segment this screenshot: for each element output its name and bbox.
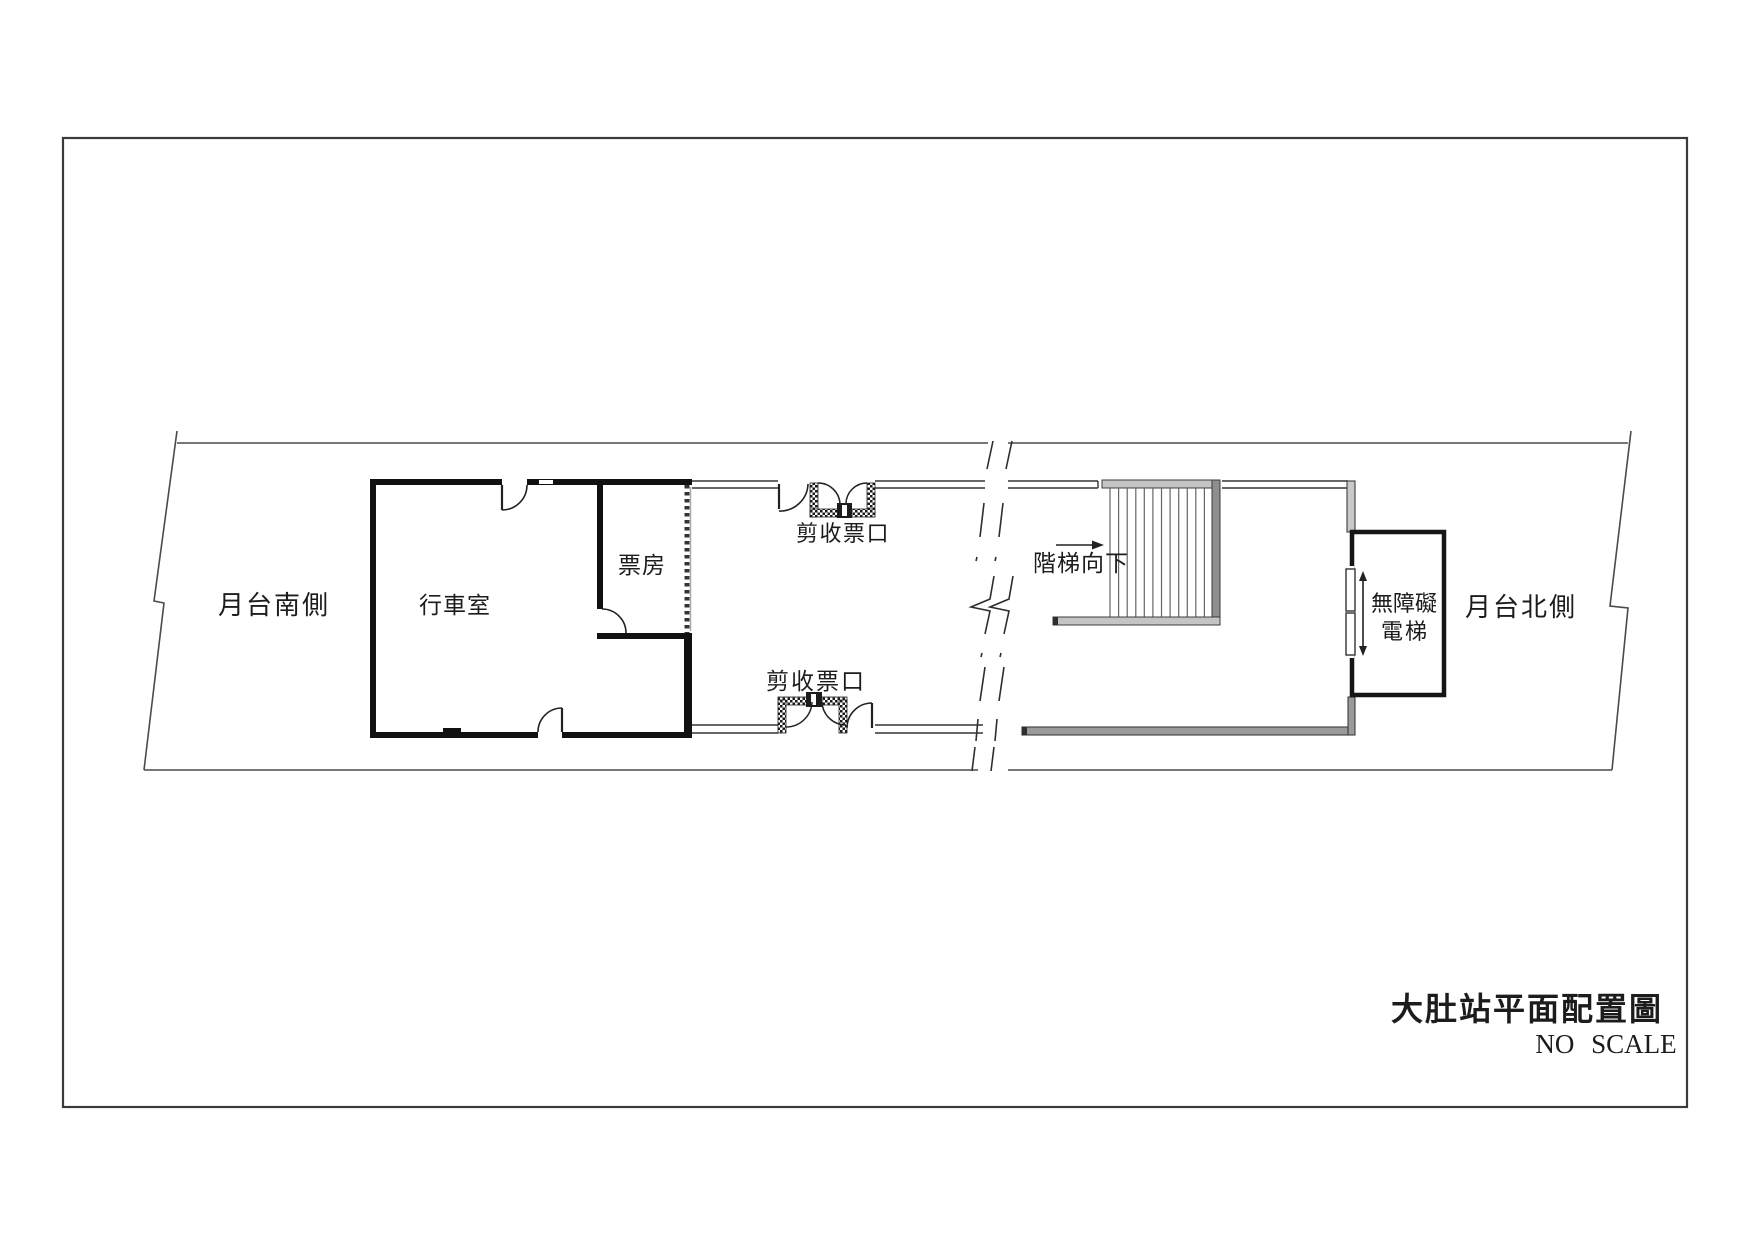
stairs-down-label: 階梯向下	[1033, 551, 1129, 576]
building-right-wall	[684, 633, 692, 738]
building-bottom-wall-right	[562, 732, 692, 738]
elevator-door-panel-lower	[1346, 613, 1355, 655]
platform-right-edge	[1610, 431, 1631, 770]
operation-room-label: 行車室	[419, 593, 491, 618]
stair-rail-end-cap	[1053, 617, 1058, 625]
elevator-label-line1: 無障礙	[1371, 591, 1437, 616]
ticket-office-label: 票房	[618, 553, 666, 578]
drawing-sheet: 月台南側 行車室 票房 剪收票口 剪收票口 階梯向下 無障礙 電梯 月台北側 大…	[0, 0, 1755, 1241]
scale-note: NO SCALE	[1535, 1029, 1676, 1059]
platform-north-label: 月台北側	[1465, 593, 1577, 622]
door-swing-bottom	[538, 708, 562, 732]
paid-area-bottom-wall	[1022, 727, 1348, 735]
building-top-wall-left	[370, 479, 502, 485]
top-wall-window-mark	[539, 480, 553, 484]
corridor-walls	[692, 481, 1348, 733]
corridor-wall-bottom	[692, 725, 983, 733]
break-line-right	[990, 441, 1013, 771]
wall-connector-elevator-bottom	[1348, 697, 1355, 735]
drawing-title: 大肚站平面配置圖	[1391, 991, 1663, 1027]
ticket-gate-lower-label: 剪收票口	[766, 669, 866, 694]
door-swing-ticket-office	[602, 609, 626, 633]
elevator-door-panel-upper	[1346, 569, 1355, 611]
ticket-gate-upper-label: 剪收票口	[796, 521, 890, 546]
door-swing-corridor-bottom	[847, 703, 872, 728]
platform-south-label: 月台南側	[218, 591, 330, 620]
floor-plan-canvas: 月台南側 行車室 票房 剪收票口 剪收票口 階梯向下 無障礙 電梯 月台北側 大…	[0, 0, 1755, 1241]
door-swing-top	[502, 485, 527, 510]
stairs-down-arrow-icon	[1056, 541, 1104, 550]
door-swing-corridor-top	[779, 484, 808, 511]
bottom-wall-mark	[443, 728, 461, 738]
wall-corner-to-elevator-top	[1347, 481, 1355, 532]
corridor-wall-top	[692, 481, 1348, 488]
ticket-office-partition	[687, 485, 691, 633]
ticket-office-left-wall	[597, 479, 603, 609]
ticket-gate-upper	[810, 483, 875, 518]
ticket-gate-lower	[778, 692, 847, 733]
building-left-wall	[370, 479, 376, 738]
stair-right-rail	[1212, 480, 1220, 625]
platform-left-edge	[144, 431, 177, 770]
elevator-label-line2: 電梯	[1381, 619, 1429, 644]
ticket-office-bottom-wall	[597, 633, 692, 639]
wall-end-cap	[1022, 727, 1027, 735]
stair-bottom-rail	[1053, 617, 1220, 625]
break-lines	[971, 441, 1013, 771]
stair-top-rail	[1102, 480, 1220, 488]
paid-area-walls	[1022, 481, 1355, 735]
